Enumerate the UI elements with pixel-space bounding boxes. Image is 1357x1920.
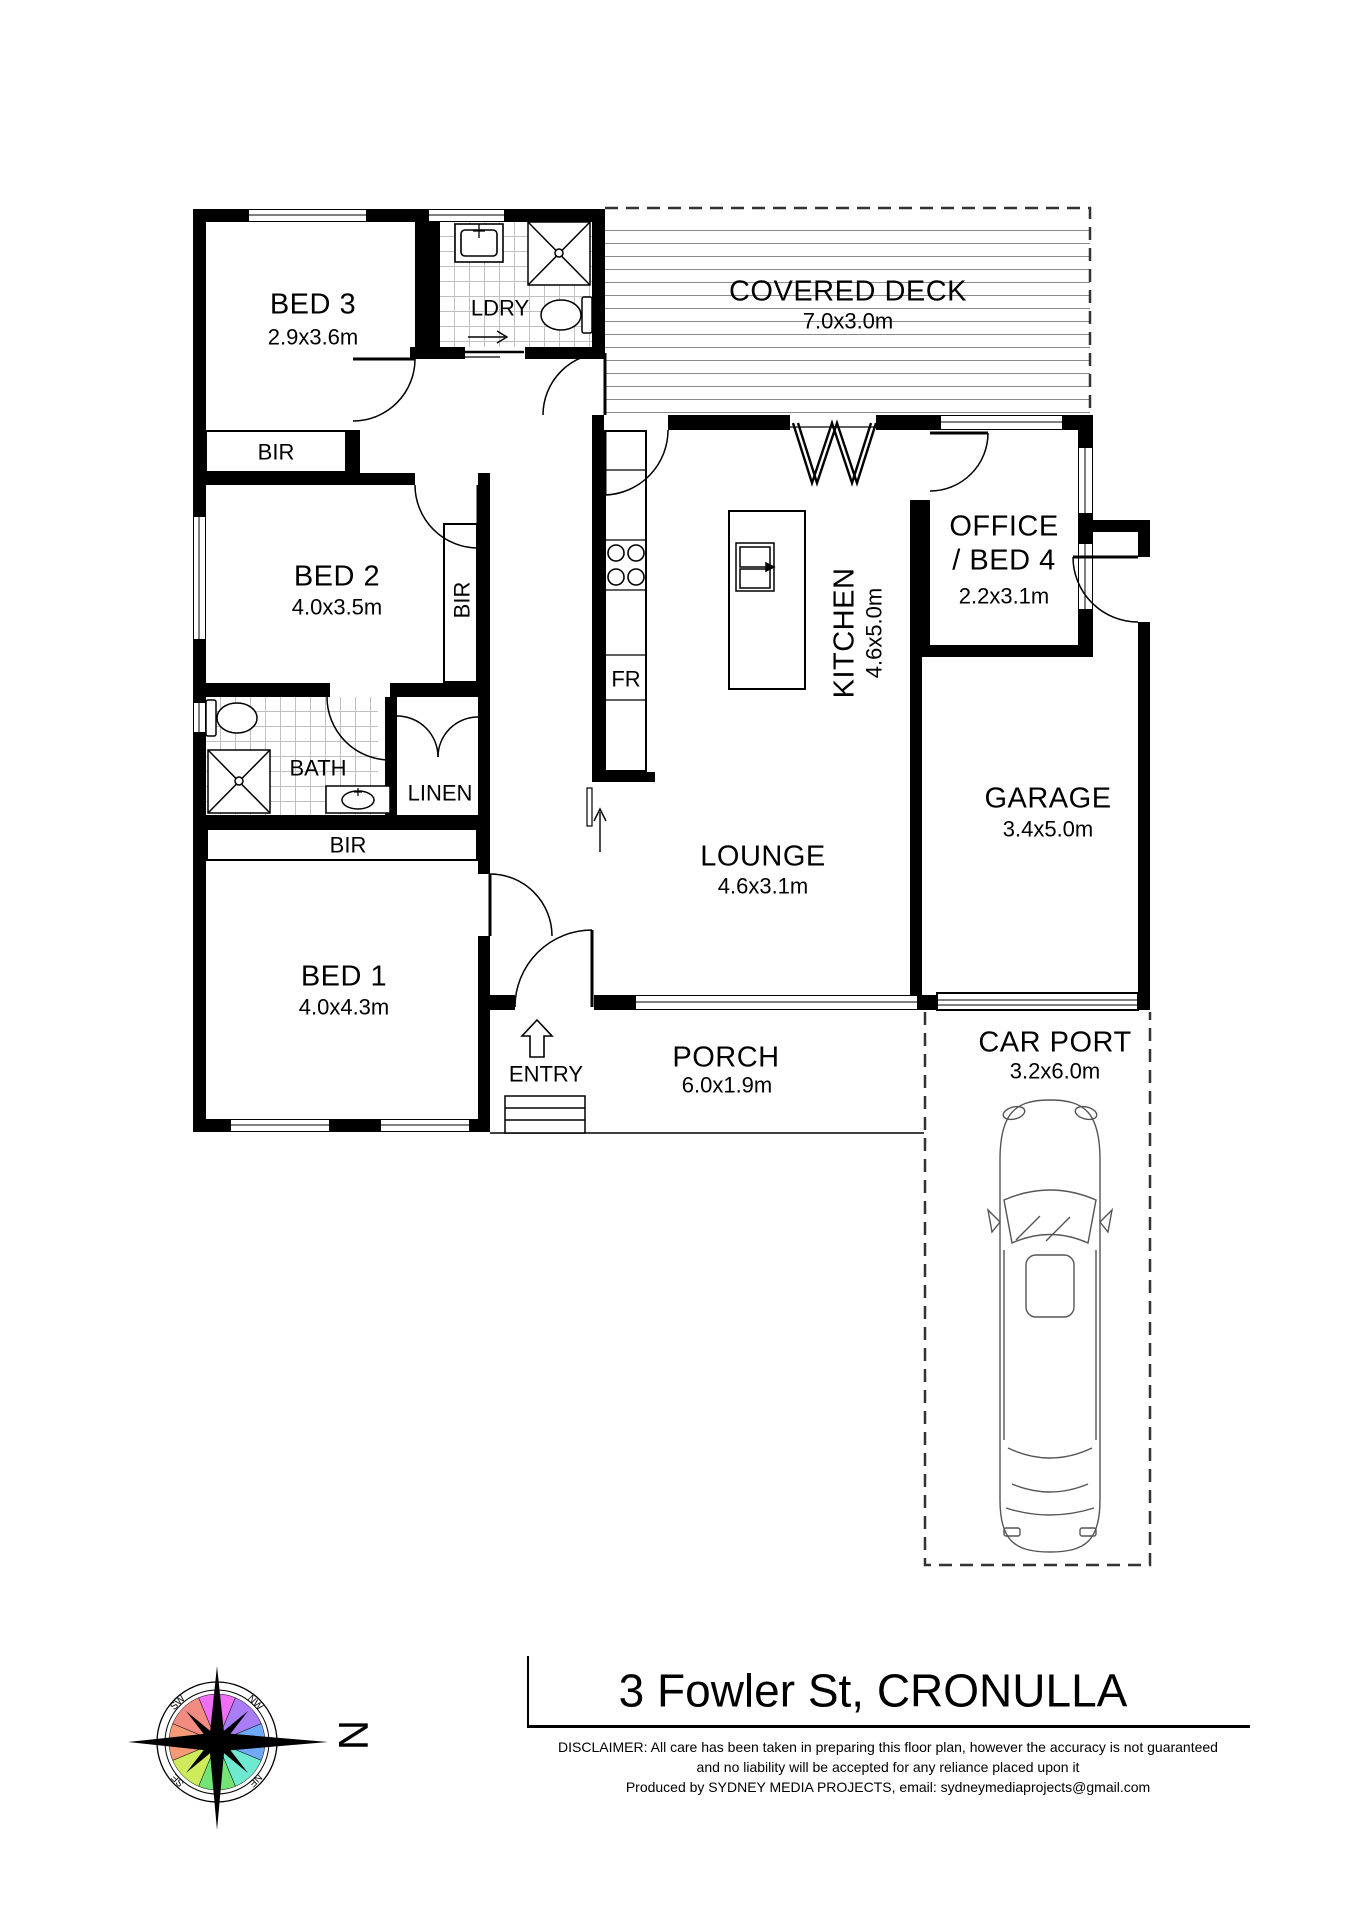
window	[380, 1119, 470, 1132]
window	[248, 209, 367, 222]
room-dims-lounge: 4.6x3.1m	[718, 873, 809, 898]
disclaimer-line-1: DISCLAIMER: All care has been taken in p…	[558, 1739, 1218, 1755]
wall	[390, 683, 490, 697]
produced-by-line: Produced by SYDNEY MEDIA PROJECTS, email…	[626, 1779, 1150, 1795]
room-label-office: OFFICE	[949, 510, 1058, 543]
title-underline	[527, 1725, 1250, 1728]
room-label-carport: CAR PORT	[978, 1026, 1131, 1059]
room-label-linen: LINEN	[408, 780, 473, 805]
wall	[876, 415, 940, 430]
room-dims-carport: 3.2x6.0m	[1010, 1058, 1101, 1083]
window	[1078, 447, 1093, 514]
room-label-office2: / BED 4	[952, 544, 1055, 577]
compass-sector	[199, 1694, 236, 1742]
wall	[193, 1119, 230, 1132]
car-icon	[988, 1100, 1112, 1552]
window	[230, 1119, 330, 1132]
room-label-bed2: BED 2	[294, 560, 380, 593]
compass-sector	[173, 1698, 217, 1742]
wall	[1138, 995, 1150, 1010]
compass-label-nw: NW	[245, 1693, 265, 1713]
room-label-porch: PORCH	[672, 1041, 779, 1074]
room-dims-bed2: 4.0x3.5m	[292, 594, 383, 619]
room-label-bed3: BED 3	[270, 288, 356, 321]
wall	[918, 645, 1090, 657]
wall	[505, 209, 605, 222]
wall	[1138, 622, 1150, 995]
floorplan-page: NW NE SE SW N BED 3 2.9x3.6m LDRY COVERE…	[0, 0, 1357, 1920]
disclaimer-line-2: and no liability will be accepted for an…	[697, 1759, 1080, 1775]
bir-label-bed3: BIR	[258, 439, 295, 464]
room-dims-bed1: 4.0x4.3m	[299, 994, 390, 1019]
wall	[592, 209, 605, 359]
kitchen-dims: 4.6x5.0m	[862, 568, 887, 699]
room-label-bed1: BED 1	[301, 960, 387, 993]
window	[940, 415, 1063, 430]
compass-sector	[217, 1698, 261, 1742]
compass-sector	[169, 1724, 217, 1761]
wall	[1063, 415, 1093, 430]
window	[428, 209, 505, 222]
wall	[415, 222, 440, 353]
carport-dashed-boundary	[925, 1012, 1150, 1565]
compass-sector	[199, 1742, 236, 1790]
room-label-ldry: LDRY	[471, 295, 529, 320]
room-dims-porch: 6.0x1.9m	[682, 1072, 773, 1097]
compass-label-se: SE	[169, 1771, 186, 1788]
room-dims-bed3: 2.9x3.6m	[268, 324, 359, 349]
bir-label-bed2: BIR	[449, 582, 474, 619]
compass-label-ne: NE	[246, 1771, 264, 1789]
wall	[367, 209, 428, 222]
wall	[478, 473, 490, 697]
window	[193, 516, 206, 640]
fridge-label: FR	[611, 666, 640, 691]
wall	[594, 772, 655, 782]
page-title: 3 Fowler St, CRONULLA	[619, 1665, 1128, 1718]
entry-label: ENTRY	[509, 1061, 583, 1086]
room-dims-office: 2.2x3.1m	[959, 583, 1050, 608]
ldry-slider-door	[462, 352, 524, 357]
garage-door	[937, 993, 1138, 1010]
kitchen-counter	[604, 430, 647, 772]
wall	[592, 415, 604, 782]
wall	[193, 733, 206, 1131]
window-w-glyph	[790, 423, 876, 483]
room-label-deck: COVERED DECK	[729, 275, 967, 308]
wall	[668, 415, 790, 430]
wall	[1078, 610, 1093, 657]
wall	[910, 500, 922, 995]
kitchen-island	[728, 510, 806, 690]
compass-sector	[173, 1742, 217, 1786]
room-label-bath: BATH	[289, 755, 346, 780]
title-left-tick	[527, 1656, 529, 1726]
compass-star	[128, 1666, 328, 1830]
wall	[478, 936, 490, 1010]
wall	[330, 1119, 380, 1132]
wall	[385, 697, 397, 827]
compass-north-letter: N	[330, 1720, 377, 1750]
entry-arrow-icon	[522, 1020, 552, 1057]
window	[635, 995, 918, 1010]
wall	[410, 347, 465, 359]
wall	[193, 473, 415, 485]
wall	[193, 815, 490, 828]
wall	[1078, 514, 1093, 543]
compass-sector	[217, 1742, 261, 1786]
wall	[490, 995, 515, 1010]
wall	[193, 683, 330, 697]
laundry-tile-floor	[440, 222, 592, 347]
wall	[594, 995, 635, 1010]
bir-label-bed1: BIR	[330, 832, 367, 857]
wall	[478, 1010, 490, 1131]
room-label-lounge: LOUNGE	[700, 840, 825, 873]
hall-panel	[587, 788, 592, 826]
compass-label-sw: SW	[168, 1693, 188, 1713]
wall	[1078, 430, 1093, 447]
window	[1078, 543, 1093, 610]
room-dims-garage: 3.4x5.0m	[1003, 816, 1094, 841]
wall	[347, 430, 360, 485]
room-label-garage: GARAGE	[984, 782, 1111, 815]
room-label-kitchen: KITCHEN 4.6x5.0m	[829, 568, 888, 699]
hall-up-arrow	[594, 809, 606, 852]
compass-sector	[217, 1724, 265, 1761]
kitchen-name: KITCHEN	[829, 568, 862, 699]
window	[193, 702, 206, 733]
entry-steps	[505, 1096, 585, 1133]
compass: NW NE SE SW N	[128, 1666, 377, 1830]
room-dims-deck: 7.0x3.0m	[803, 308, 894, 333]
wall	[478, 697, 490, 874]
wall	[1138, 520, 1150, 557]
